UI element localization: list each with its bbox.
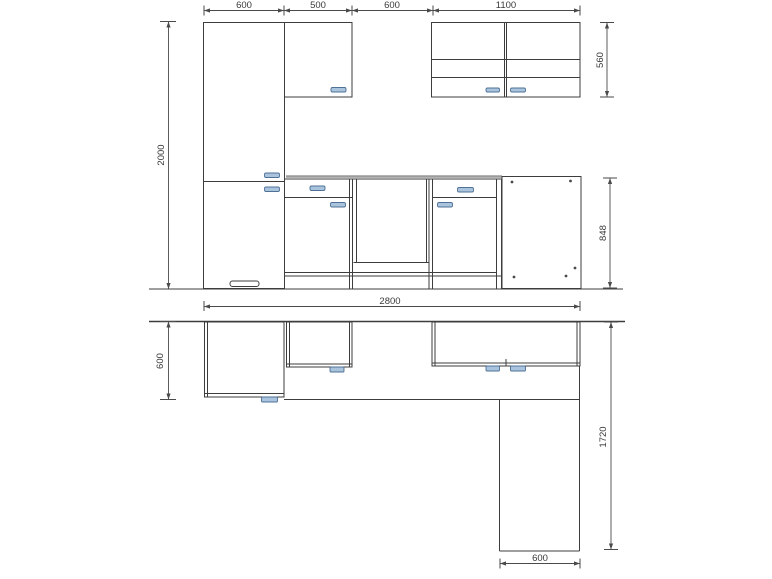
kitchen-technical-drawing: 600 500 600 1100 2000 (0, 0, 772, 579)
dimension-top-chain: 600 500 600 1100 (204, 0, 580, 16)
wall-cabinet-500-body (285, 23, 353, 98)
drill-dot (569, 180, 572, 183)
tall-cabinet-footprint (205, 322, 285, 397)
wall-cabinet-1100-plan (432, 322, 580, 371)
dimension-height-2000: 2000 (156, 22, 176, 290)
dimension-base-848: 848 (598, 178, 617, 288)
wall-cabinet-500 (285, 23, 353, 98)
corner-panel-body (502, 177, 581, 289)
wall-cabinet-500-footprint (287, 322, 353, 367)
dim-label-gap-width: 600 (384, 0, 400, 11)
tall-cabinet-lower-handle (265, 187, 280, 192)
wall-cabinet-500-plan (287, 322, 353, 372)
dim-label-return-width: 600 (532, 553, 548, 564)
drill-dot (511, 181, 514, 184)
wall-cabinet-1100-plan-left-handle (486, 366, 500, 371)
wall-cabinet-1100-right-handle (511, 88, 526, 92)
base-drawer-handle (458, 188, 474, 193)
oven-housing (354, 179, 430, 263)
wall-cabinet-500-handle (331, 88, 346, 93)
plan-view: 600 1720 600 (149, 322, 625, 569)
wall-cabinet-1100-plan-right-handle (511, 366, 526, 371)
drill-dot (574, 267, 577, 270)
dim-label-depth: 600 (155, 353, 166, 369)
dim-label-wallcab1100-width: 1100 (496, 0, 516, 11)
dim-label-height: 2000 (156, 144, 167, 165)
dimension-return-600: 600 (500, 553, 580, 569)
base-cabinets (285, 177, 582, 289)
dim-label-wallcab500-width: 500 (310, 0, 326, 11)
dim-label-return-length: 1720 (598, 426, 609, 447)
wall-cabinet-1100-left-handle (486, 88, 500, 92)
corner-side-panel (502, 177, 581, 289)
drawing-canvas: 600 500 600 1100 2000 (0, 0, 772, 579)
worktop-elevation (285, 177, 502, 180)
tall-cabinet-plan (205, 322, 285, 402)
tall-cabinet-upper-handle (265, 173, 280, 178)
tall-cabinet (204, 23, 285, 289)
dimension-total-2800: 2800 (204, 296, 580, 311)
drill-dot (513, 276, 516, 279)
dimension-wallcab-560: 560 (595, 23, 614, 98)
dimension-depth-600: 600 (155, 322, 176, 400)
base-door-handle (438, 203, 453, 208)
sink-base-cabinet (285, 186, 353, 207)
tall-cabinet-plan-handle (262, 397, 278, 402)
dimension-return-1720: 1720 (598, 322, 618, 550)
sink-door-handle (331, 203, 346, 208)
tall-cabinet-body (204, 23, 285, 289)
sink-drawer-handle (310, 186, 325, 191)
elevation-view: 600 500 600 1100 2000 (149, 0, 623, 311)
drill-dot (565, 275, 568, 278)
dim-label-base-height: 848 (598, 225, 609, 241)
vent-grille (230, 281, 259, 287)
wall-cabinet-1100 (432, 23, 581, 98)
wall-cabinet-500-plan-handle (330, 367, 344, 372)
dim-label-wallcab-height: 560 (595, 52, 606, 68)
dim-label-total-width: 2800 (379, 296, 400, 307)
drawer-base-cabinet (433, 188, 497, 208)
dim-label-tall-width: 600 (236, 0, 252, 11)
